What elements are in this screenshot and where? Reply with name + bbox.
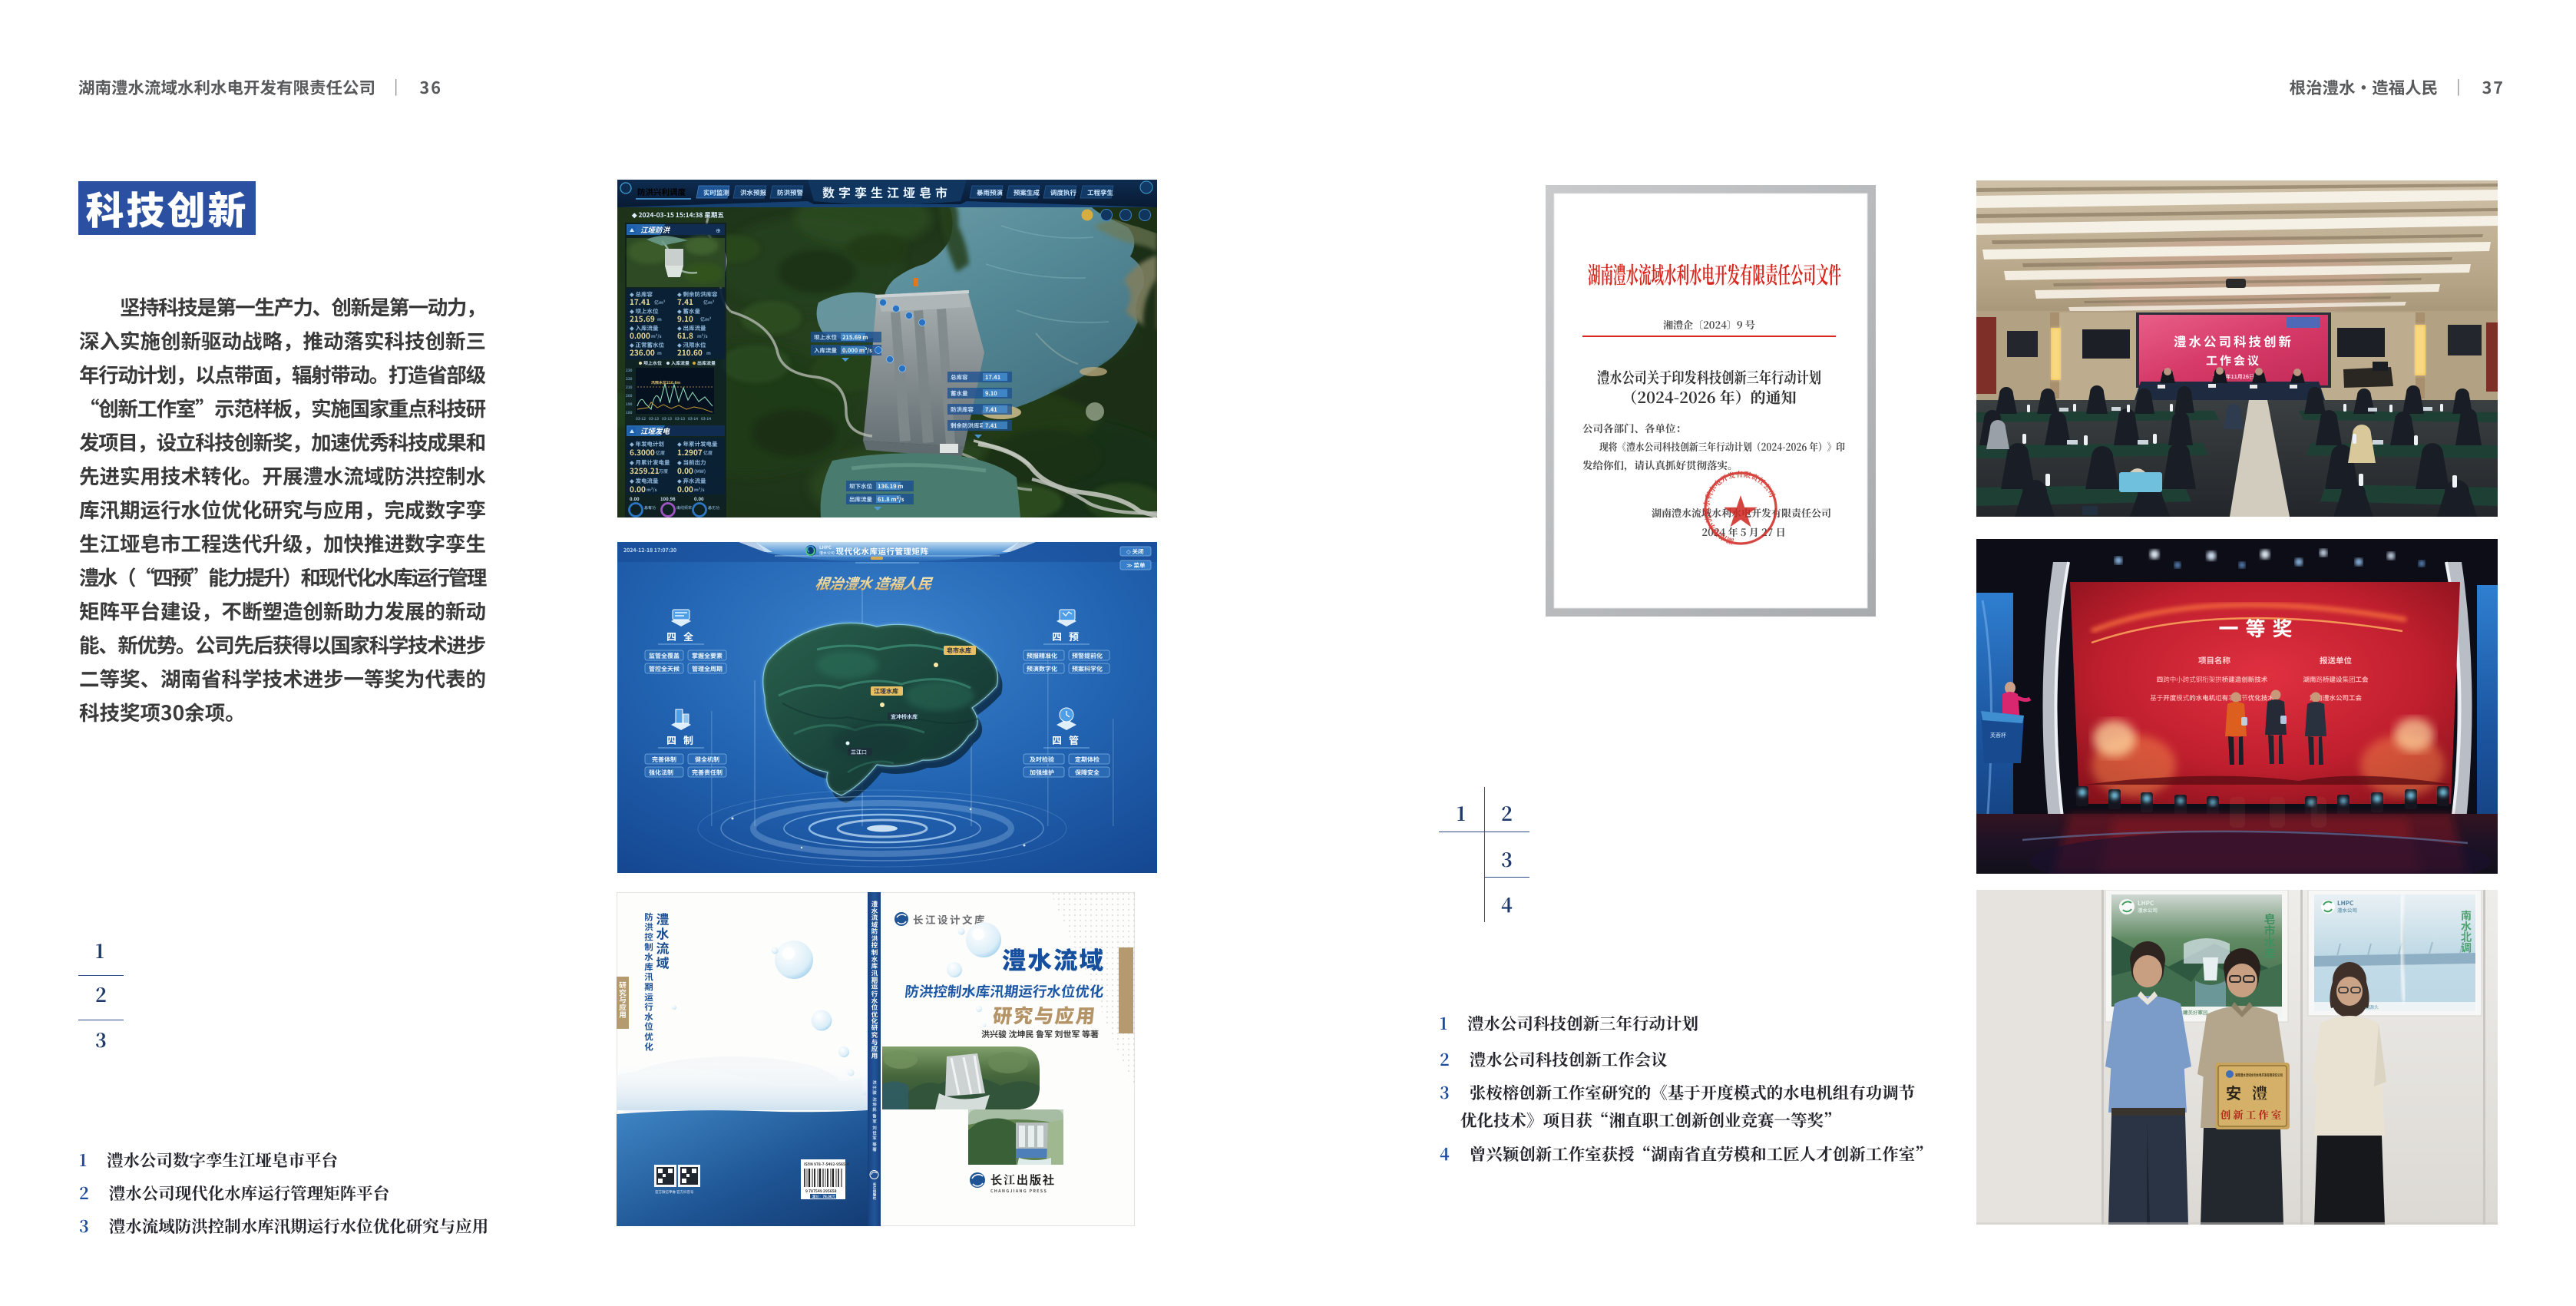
svg-text:210: 210 (626, 385, 633, 390)
svg-text:数字孪生江垭皂市: 数字孪生江垭皂市 (822, 183, 951, 201)
svg-text:坝上水位: 坝上水位 (814, 333, 837, 342)
svg-text:预案生成: 预案生成 (1014, 188, 1040, 197)
svg-text:研究与应用: 研究与应用 (617, 981, 628, 1018)
svg-text:完善体制: 完善体制 (652, 755, 676, 764)
svg-text:预演数字化: 预演数字化 (1027, 665, 1057, 673)
svg-text:总库容: 总库容 (951, 373, 968, 382)
svg-text:研究与应用: 研究与应用 (991, 1001, 1098, 1029)
svg-text:亿m³: 亿m³ (700, 316, 712, 322)
svg-text:m³/s: m³/s (694, 486, 705, 493)
svg-text:宜冲桥水库: 宜冲桥水库 (891, 713, 918, 721)
svg-text:澧水公司: 澧水公司 (2337, 906, 2357, 914)
svg-text:保障安全: 保障安全 (1075, 769, 1100, 777)
svg-text:(MW): (MW) (694, 468, 706, 474)
svg-text:入库流量: 入库流量 (814, 346, 837, 355)
svg-text:管控全天候: 管控全天候 (649, 665, 680, 673)
svg-text:定期体检: 定期体检 (1075, 755, 1100, 764)
svg-text:发给你们，请认真抓好贯彻落实。: 发给你们，请认真抓好贯彻落实。 (1582, 457, 1738, 472)
svg-text:出线频率: 出线频率 (676, 505, 692, 511)
svg-text:防洪控制水库汛期运行水位优化: 防洪控制水库汛期运行水位优化 (904, 980, 1105, 1001)
svg-text:湖南澧水流域水利水电开发有限责任公司文件: 湖南澧水流域水利水电开发有限责任公司文件 (1588, 256, 1841, 290)
svg-text:≫ 菜单: ≫ 菜单 (1126, 561, 1146, 570)
svg-text:0.00: 0.00 (630, 483, 646, 494)
svg-text:坝上水位: 坝上水位 (643, 359, 662, 366)
svg-text:加强维护: 加强维护 (1030, 769, 1054, 777)
svg-text:现代化水库运行管理矩阵: 现代化水库运行管理矩阵 (836, 546, 929, 557)
svg-text:调度执行: 调度执行 (1050, 188, 1077, 197)
svg-text:公司各部门、各单位：: 公司各部门、各单位： (1582, 420, 1686, 435)
svg-text:四 管: 四 管 (1052, 732, 1081, 747)
svg-text:出库流量: 出库流量 (697, 359, 716, 366)
svg-text:澧水公司科技创新: 澧水公司科技创新 (2174, 332, 2293, 350)
svg-text:长江出版社: 长江出版社 (990, 1172, 1056, 1188)
svg-text:9.10: 9.10 (985, 389, 997, 398)
svg-text:及时检验: 及时检验 (1030, 755, 1054, 764)
svg-text:215.69 m: 215.69 m (842, 333, 868, 342)
svg-text:17.41: 17.41 (985, 373, 1000, 382)
svg-text:监管全覆盖: 监管全覆盖 (649, 652, 680, 660)
svg-text:136.19 m: 136.19 m (878, 482, 904, 491)
svg-text:210.60: 210.60 (677, 346, 703, 358)
svg-text:定价：78.00元: 定价：78.00元 (812, 1195, 836, 1199)
svg-text:7.41: 7.41 (985, 422, 997, 430)
svg-text:预案科学化: 预案科学化 (1072, 665, 1103, 673)
svg-text:220: 220 (626, 376, 633, 382)
svg-text:万度: 万度 (659, 468, 668, 474)
svg-text:澧水公司: 澧水公司 (819, 551, 835, 556)
svg-text:澧水流域防洪控制水库汛期运行水位优化研究与应用: 澧水流域防洪控制水库汛期运行水位优化研究与应用 (870, 900, 879, 1059)
svg-text:入库流量: 入库流量 (671, 359, 689, 366)
svg-text:防洪预警: 防洪预警 (777, 188, 804, 197)
svg-text:一等奖: 一等奖 (2218, 613, 2299, 642)
svg-text:m³/s: m³/s (697, 332, 708, 339)
svg-text:亿度: 亿度 (656, 449, 665, 456)
svg-text:0.00: 0.00 (694, 495, 704, 502)
svg-text:根治澧水 造福人民: 根治澧水 造福人民 (814, 573, 934, 593)
svg-text:◇ 关闭: ◇ 关闭 (1126, 547, 1144, 556)
svg-text:澧水流域: 澧水流域 (653, 912, 673, 970)
svg-text:南水北调: 南水北调 (2459, 910, 2474, 954)
svg-text:预警提前化: 预警提前化 (1072, 652, 1103, 660)
svg-text:2024-12-18 17:07:30: 2024-12-18 17:07:30 (623, 547, 676, 554)
svg-text:完善责任制: 完善责任制 (692, 769, 723, 777)
svg-text:m: m (657, 316, 662, 322)
svg-text:工作会议: 工作会议 (2206, 352, 2261, 369)
svg-text:m³/s: m³/s (646, 486, 657, 493)
svg-text:200: 200 (626, 393, 633, 398)
svg-text:0.000 m³/s: 0.000 m³/s (842, 346, 872, 355)
svg-text:m: m (657, 349, 662, 356)
svg-text:健全机制: 健全机制 (695, 755, 719, 764)
svg-text:工程孪生: 工程孪生 (1087, 188, 1114, 197)
svg-text:防洪兴利调度: 防洪兴利调度 (637, 187, 686, 198)
svg-text:◆ 2024-03-15 15:14:38 星期五: ◆ 2024-03-15 15:14:38 星期五 (631, 210, 724, 220)
svg-text:江垭发电: 江垭发电 (640, 425, 671, 436)
svg-text:湖南路桥建设集团工会: 湖南路桥建设集团工会 (2303, 675, 2369, 684)
svg-text:四 全: 四 全 (666, 629, 696, 643)
svg-text:项目名称: 项目名称 (2198, 655, 2231, 666)
svg-text:03-14: 03-14 (688, 416, 698, 422)
svg-text:180: 180 (626, 410, 633, 415)
svg-text:CHANGJIANG PRESS: CHANGJIANG PRESS (990, 1188, 1047, 1194)
svg-text:出库流量: 出库流量 (849, 495, 872, 504)
svg-text:03-13: 03-13 (675, 416, 685, 422)
svg-text:7.41: 7.41 (985, 405, 997, 414)
svg-text:湘澧企〔2024〕9 号: 湘澧企〔2024〕9 号 (1663, 317, 1755, 332)
svg-text:四跨中小跨式钢桁架拱桥建造创新技术: 四跨中小跨式钢桁架拱桥建造创新技术 (2157, 675, 2268, 684)
svg-text:四 制: 四 制 (666, 732, 696, 747)
svg-text:215.69: 215.69 (630, 312, 655, 324)
svg-text:亿m³: 亿m³ (654, 299, 666, 306)
svg-text:坝下水位: 坝下水位 (849, 482, 872, 491)
svg-text:总有功: 总有功 (644, 505, 656, 511)
svg-text:皂市水库: 皂市水库 (947, 646, 971, 655)
svg-text:230: 230 (626, 368, 633, 373)
svg-text:03-13: 03-13 (662, 416, 672, 422)
svg-text:江垭防洪: 江垭防洪 (640, 224, 671, 235)
svg-text:0.00: 0.00 (677, 483, 693, 494)
svg-text:⊕: ⊕ (716, 226, 721, 235)
svg-text:长江出版社: 长江出版社 (872, 1182, 877, 1200)
svg-text:洪兴骏 沈坤民 鲁军 刘世军 等著: 洪兴骏 沈坤民 鲁军 刘世军 等著 (981, 1028, 1099, 1040)
svg-text:0.000: 0.000 (630, 329, 650, 341)
svg-text:三江口: 三江口 (851, 749, 867, 756)
svg-text:洪水预报: 洪水预报 (740, 188, 767, 197)
svg-text:m³/s: m³/s (651, 332, 662, 339)
svg-text:四 预: 四 预 (1052, 629, 1081, 643)
svg-text:汛限水位210.6m: 汛限水位210.6m (651, 380, 680, 385)
svg-text:61.8: 61.8 (677, 329, 693, 341)
svg-text:0.00: 0.00 (677, 465, 693, 476)
svg-text:皂市水库: 皂市水库 (2262, 913, 2278, 959)
svg-text:实时监测: 实时监测 (703, 188, 729, 197)
svg-text:190: 190 (626, 402, 633, 407)
svg-text:防洪库容: 防洪库容 (951, 405, 974, 414)
svg-text:强化法制: 强化法制 (649, 769, 673, 777)
svg-text:0.00: 0.00 (630, 495, 640, 502)
svg-text:ISBN 978-7-5492-9565-8: ISBN 978-7-5492-9565-8 (804, 1162, 849, 1167)
svg-text:防洪控制水库汛期运行水位优化: 防洪控制水库汛期运行水位优化 (643, 912, 655, 1052)
svg-text:61.8 m³/s: 61.8 m³/s (878, 495, 904, 504)
svg-text:基于开度模式的水电机组有功调节优化技术: 基于开度模式的水电机组有功调节优化技术 (2150, 693, 2274, 703)
svg-text:03-12: 03-12 (636, 416, 646, 422)
svg-text:LHPC: LHPC (819, 544, 832, 551)
svg-text:236.00: 236.00 (630, 346, 655, 358)
svg-text:m: m (706, 349, 711, 356)
svg-text:蓄水量: 蓄水量 (951, 389, 968, 398)
svg-text:现将《澧水公司科技创新三年行动计划（2024-2026 年）: 现将《澧水公司科技创新三年行动计划（2024-2026 年）》印 (1599, 438, 1845, 454)
svg-text:（2024-2026 年）的通知: （2024-2026 年）的通知 (1622, 385, 1796, 408)
svg-text:6.3000: 6.3000 (630, 446, 655, 458)
svg-text:创新工作室: 创新工作室 (2221, 1106, 2284, 1122)
svg-text:掌握全要素: 掌握全要素 (692, 652, 723, 660)
svg-text:03-13: 03-13 (649, 416, 659, 422)
svg-text:9.10: 9.10 (677, 312, 693, 324)
svg-text:03-14: 03-14 (701, 416, 711, 422)
svg-text:澧水流域: 澧水流域 (1002, 941, 1105, 977)
svg-text:17.41: 17.41 (630, 296, 650, 307)
svg-text:9 787549 295658: 9 787549 295658 (805, 1189, 837, 1194)
svg-text:报送单位: 报送单位 (2320, 655, 2353, 666)
svg-text:安澧: 安澧 (2226, 1081, 2278, 1103)
svg-text:1.2907: 1.2907 (677, 446, 703, 458)
svg-text:江垭水库: 江垭水库 (874, 687, 898, 696)
svg-text:芙蓉杯: 芙蓉杯 (1990, 732, 2006, 739)
svg-text:亿度: 亿度 (703, 449, 713, 456)
svg-text:官方微信平台 官方抖音号: 官方微信平台 官方抖音号 (655, 1189, 694, 1195)
svg-text:澧水公司: 澧水公司 (2138, 906, 2158, 914)
svg-text:总无功: 总无功 (708, 505, 719, 511)
svg-text:暴雨预演: 暴雨预演 (977, 188, 1004, 197)
svg-text:湖南澧水流域水利水电开发有限责任公司: 湖南澧水流域水利水电开发有限责任公司 (2235, 1073, 2283, 1078)
svg-text:3259.21: 3259.21 (630, 465, 660, 476)
svg-text:剩余防洪库容: 剩余防洪库容 (951, 422, 985, 430)
svg-text:7.41: 7.41 (677, 296, 693, 307)
svg-text:预报精准化: 预报精准化 (1027, 652, 1057, 660)
svg-text:洪兴骏 沈坤民 鲁军 刘世军 等著: 洪兴骏 沈坤民 鲁军 刘世军 等著 (871, 1080, 878, 1152)
svg-text:澧水公司关于印发科技创新三年行动计划: 澧水公司关于印发科技创新三年行动计划 (1597, 365, 1821, 388)
svg-text:100.98: 100.98 (660, 495, 676, 502)
svg-text:管理全周期: 管理全周期 (692, 665, 723, 673)
svg-text:亿m³: 亿m³ (703, 299, 715, 306)
